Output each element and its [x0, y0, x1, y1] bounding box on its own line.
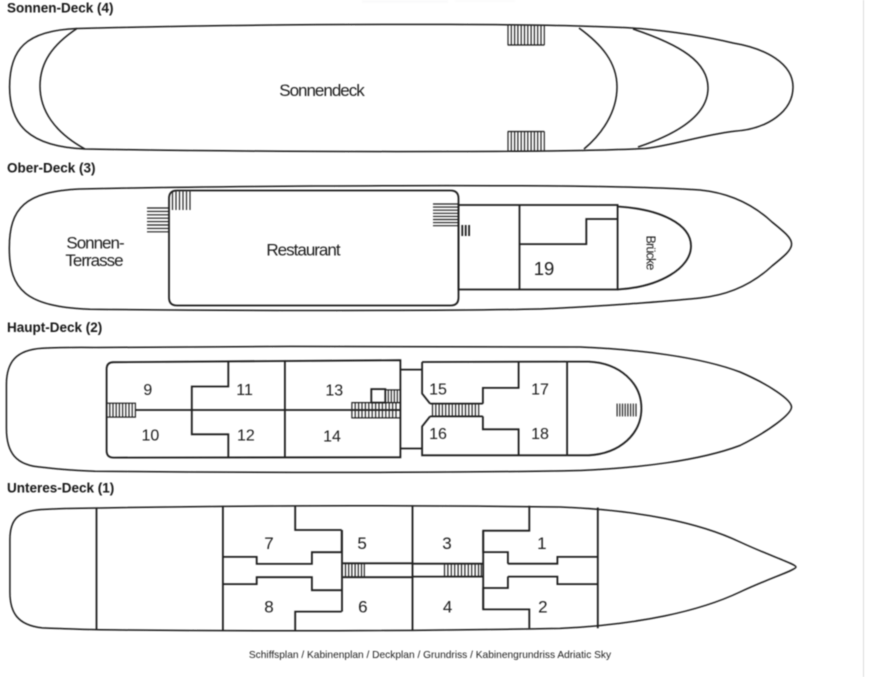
svg-text:6: 6	[358, 597, 367, 616]
svg-text:19: 19	[534, 258, 555, 279]
svg-text:13: 13	[325, 382, 343, 399]
svg-text:2: 2	[538, 597, 547, 616]
svg-text:16: 16	[429, 426, 447, 443]
svg-text:3: 3	[442, 534, 451, 553]
svg-text:14: 14	[323, 429, 341, 446]
svg-text:Sonnen-: Sonnen-	[66, 233, 124, 252]
svg-text:9: 9	[143, 382, 152, 399]
svg-text:8: 8	[264, 597, 273, 616]
svg-text:Sonnendeck: Sonnendeck	[279, 81, 365, 100]
svg-text:Ober-Deck (3): Ober-Deck (3)	[7, 160, 96, 175]
svg-text:Haupt-Deck (2): Haupt-Deck (2)	[7, 320, 102, 335]
svg-text:1: 1	[537, 534, 546, 553]
svg-text:12: 12	[237, 428, 255, 445]
svg-text:Terrasse: Terrasse	[65, 251, 123, 270]
svg-text:5: 5	[357, 534, 366, 553]
svg-text:Schiffsplan / Kabinenplan / De: Schiffsplan / Kabinenplan / Deckplan / G…	[249, 650, 612, 661]
svg-text:17: 17	[531, 382, 549, 399]
svg-text:Restaurant: Restaurant	[266, 241, 340, 260]
svg-text:15: 15	[429, 382, 447, 399]
svg-text:18: 18	[531, 426, 549, 443]
svg-text:Unteres-Deck (1): Unteres-Deck (1)	[7, 480, 114, 495]
svg-text:7: 7	[264, 534, 273, 553]
svg-text:11: 11	[236, 382, 253, 399]
svg-text:4: 4	[443, 597, 452, 616]
svg-text:10: 10	[142, 428, 160, 445]
svg-text:Brücke: Brücke	[644, 235, 658, 270]
svg-text:Sonnen-Deck (4): Sonnen-Deck (4)	[7, 1, 114, 16]
